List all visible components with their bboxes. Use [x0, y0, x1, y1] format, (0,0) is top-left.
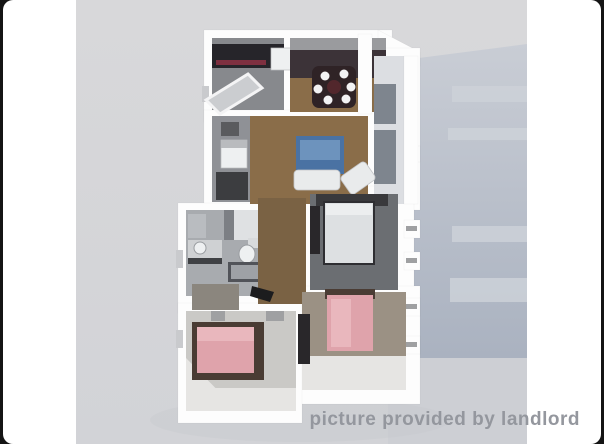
bedroom3-bed-sheen	[197, 327, 254, 341]
sink	[194, 242, 206, 254]
light-band	[450, 278, 527, 302]
door-mark	[266, 311, 284, 321]
door-mark	[406, 342, 417, 347]
light-band	[452, 226, 527, 242]
bedroom3-floor-bottom	[186, 388, 296, 411]
master-bedroom	[310, 194, 398, 290]
dining-table-center	[327, 80, 341, 94]
bedroom-2	[298, 289, 406, 390]
utility-dark-floor	[216, 172, 248, 200]
area-rug-highlight	[300, 140, 340, 160]
dining-area	[290, 34, 386, 114]
utility-room	[212, 116, 250, 202]
dining-chair	[340, 70, 349, 79]
balcony-outer-wall	[404, 56, 418, 204]
dining-chair	[314, 85, 323, 94]
dining-right-wall	[358, 34, 372, 114]
watermark-text: picture provided by landlord	[309, 409, 580, 431]
kitchen	[206, 38, 291, 114]
balcony	[374, 56, 418, 204]
door-mark	[406, 304, 417, 309]
hallway-floor	[258, 198, 306, 304]
dining-chair	[342, 95, 351, 104]
door-mark	[406, 226, 417, 231]
bedroom2-closet	[298, 314, 310, 364]
washer-top	[221, 140, 247, 148]
dining-chair	[347, 83, 356, 92]
dining-chair	[324, 96, 333, 105]
living-room	[250, 116, 377, 204]
bathroom	[186, 210, 262, 296]
door-mark	[211, 311, 225, 321]
balcony-glass-panel	[374, 84, 396, 124]
sofa	[294, 170, 340, 190]
wall-notch	[176, 250, 183, 268]
linen-shelf	[188, 214, 206, 238]
bedroom2-bed-sheen	[331, 299, 351, 347]
floorplan-render	[0, 0, 604, 444]
wall-notch	[176, 330, 183, 348]
dresser	[192, 284, 239, 310]
master-closet	[310, 206, 320, 254]
hallway	[250, 198, 306, 304]
utility-cabinet	[221, 122, 239, 136]
master-bed-pillows	[326, 204, 372, 215]
shower-wall	[224, 210, 234, 240]
door-mark	[406, 258, 417, 263]
toilet	[239, 245, 255, 263]
light-band	[448, 128, 527, 140]
bedroom2-lit-floor	[302, 356, 406, 390]
counter-accent-strip	[216, 60, 266, 65]
dining-chair	[321, 72, 330, 81]
bathtub-inner	[231, 265, 259, 279]
image-viewer: { "watermark": { "text": "picture provid…	[0, 0, 604, 444]
refrigerator	[271, 48, 291, 70]
light-band	[452, 86, 527, 102]
balcony-glass-panel	[374, 130, 396, 184]
vanity-base	[188, 258, 222, 264]
